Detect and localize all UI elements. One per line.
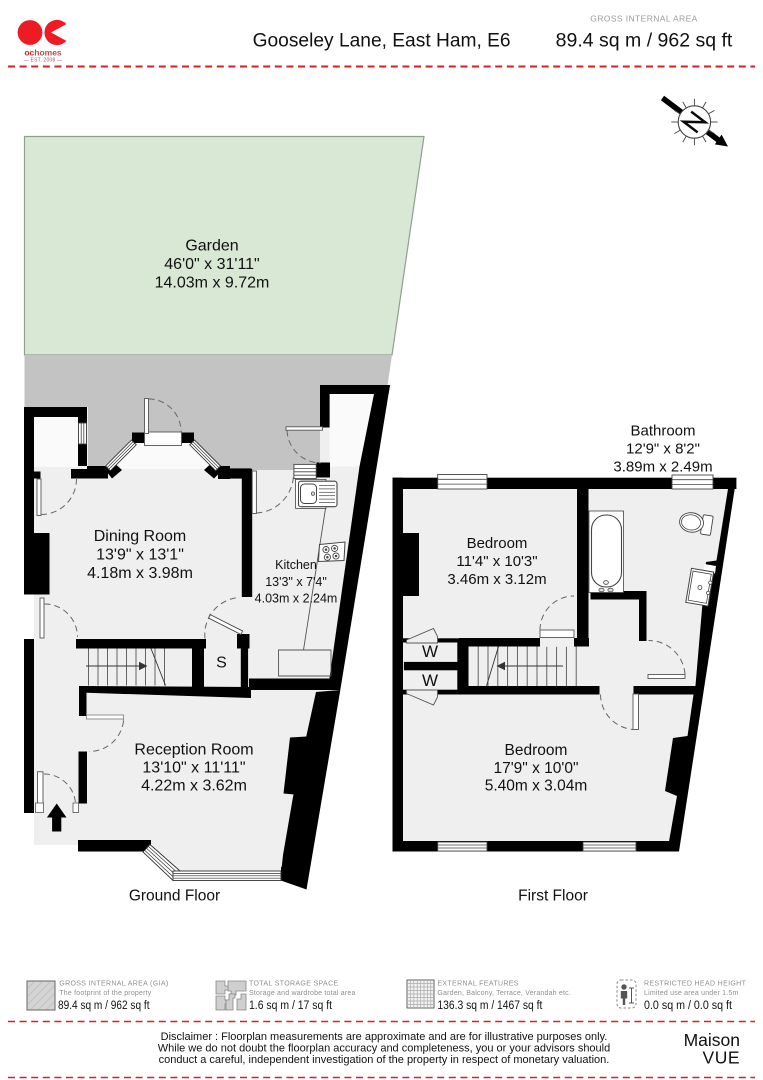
svg-text:GROSS INTERNAL AREA: GROSS INTERNAL AREA [590, 14, 697, 24]
svg-text:W: W [422, 671, 438, 690]
svg-text:13'10" x 11'11": 13'10" x 11'11" [142, 760, 245, 777]
svg-text:46'0" x 31'11": 46'0" x 31'11" [164, 256, 259, 273]
svg-text:Limited use area under 1.5m: Limited use area under 1.5m [644, 990, 739, 997]
svg-text:17'9" x 10'0": 17'9" x 10'0" [493, 760, 578, 777]
svg-text:3.46m x 3.12m: 3.46m x 3.12m [447, 571, 546, 588]
svg-text:Storage and wardrobe total are: Storage and wardrobe total area [249, 990, 356, 997]
svg-text:Bedroom: Bedroom [505, 742, 568, 759]
svg-text:Disclaimer : Floorplan measure: Disclaimer : Floorplan measurements are … [161, 1031, 608, 1043]
svg-text:W: W [422, 642, 438, 661]
svg-text:89.4 sq m / 962 sq ft: 89.4 sq m / 962 sq ft [556, 30, 733, 52]
svg-text:S: S [216, 655, 227, 672]
svg-text:VUE: VUE [703, 1048, 740, 1068]
svg-text:Bedroom: Bedroom [467, 535, 528, 552]
svg-text:12'9" x 8'2": 12'9" x 8'2" [626, 441, 700, 458]
svg-text:13'3" x 7'4": 13'3" x 7'4" [265, 575, 327, 589]
svg-text:4.22m x 3.62m: 4.22m x 3.62m [141, 778, 247, 795]
svg-text:3.89m x 2.49m: 3.89m x 2.49m [613, 459, 712, 476]
svg-text:11'4" x 10'3": 11'4" x 10'3" [456, 553, 537, 570]
svg-text:0.0 sq m / 0.0 sq ft: 0.0 sq m / 0.0 sq ft [644, 1000, 733, 1012]
svg-text:RESTRICTED HEAD HEIGHT: RESTRICTED HEAD HEIGHT [644, 981, 747, 988]
svg-text:Garden, Balcony, Terrace, Vera: Garden, Balcony, Terrace, Verandah etc. [437, 990, 571, 997]
svg-text:TOTAL STORAGE SPACE: TOTAL STORAGE SPACE [249, 981, 339, 988]
svg-text:5.40m x 3.04m: 5.40m x 3.04m [485, 778, 588, 795]
svg-text:— EST. 2008 —: — EST. 2008 — [24, 58, 62, 64]
svg-text:13'9" x 13'1": 13'9" x 13'1" [96, 547, 184, 564]
svg-text:Reception Room: Reception Room [134, 742, 253, 759]
svg-text:14.03m x 9.72m: 14.03m x 9.72m [155, 275, 270, 292]
svg-text:136.3 sq m / 1467 sq ft: 136.3 sq m / 1467 sq ft [437, 1000, 543, 1012]
svg-text:EXTERNAL FEATURES: EXTERNAL FEATURES [437, 981, 518, 988]
svg-text:1.6 sq m / 17 sq ft: 1.6 sq m / 17 sq ft [249, 1000, 333, 1012]
svg-text:Dining Room: Dining Room [94, 528, 186, 545]
svg-text:Bathroom: Bathroom [630, 423, 695, 440]
svg-text:While we do not doubt the floo: While we do not doubt the floorplan accu… [158, 1043, 610, 1055]
svg-text:4.03m x 2.24m: 4.03m x 2.24m [255, 592, 338, 606]
svg-text:conduct a careful, independent: conduct a careful, independent investiga… [159, 1054, 610, 1066]
svg-text:Gooseley Lane, East Ham, E6: Gooseley Lane, East Ham, E6 [253, 31, 511, 52]
svg-text:Kitchen: Kitchen [275, 558, 317, 572]
svg-text:The footprint of the property: The footprint of the property [59, 990, 151, 997]
svg-text:Garden: Garden [185, 238, 238, 255]
svg-text:ochomes: ochomes [24, 48, 62, 58]
svg-text:89.4 sq m / 962 sq ft: 89.4 sq m / 962 sq ft [58, 1000, 150, 1012]
svg-text:Ground Floor: Ground Floor [129, 888, 220, 905]
svg-text:First Floor: First Floor [518, 888, 588, 905]
svg-text:4.18m x 3.98m: 4.18m x 3.98m [87, 565, 193, 582]
svg-text:GROSS INTERNAL AREA (GIA): GROSS INTERNAL AREA (GIA) [59, 981, 168, 988]
